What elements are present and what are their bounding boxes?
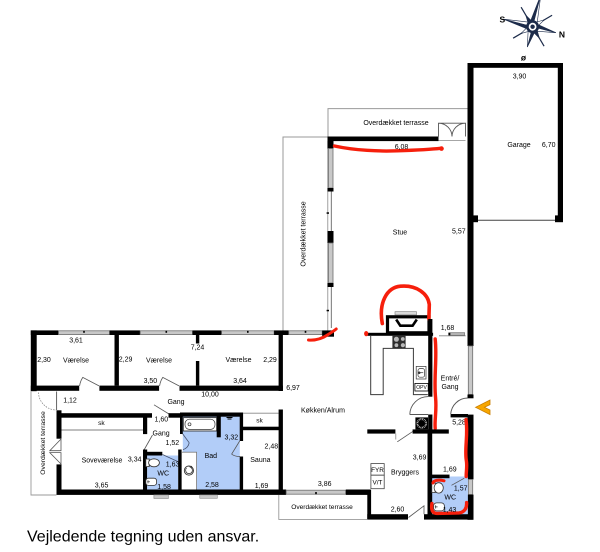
svg-text:Værelse: Værelse: [146, 358, 172, 365]
svg-text:sk: sk: [98, 420, 105, 427]
svg-text:FYR: FYR: [371, 467, 384, 474]
svg-text:1,68: 1,68: [441, 325, 455, 332]
svg-text:3,86: 3,86: [318, 481, 332, 488]
svg-text:Værelse: Værelse: [63, 358, 89, 365]
svg-text:Vejledende tegning uden ansvar: Vejledende tegning uden ansvar.: [27, 529, 259, 546]
svg-text:1,12: 1,12: [63, 397, 77, 404]
svg-text:Overdækket terrasse: Overdækket terrasse: [363, 120, 428, 127]
svg-text:6,70: 6,70: [542, 142, 556, 149]
svg-text:3,32: 3,32: [224, 435, 238, 442]
svg-text:5,57: 5,57: [452, 229, 466, 236]
svg-text:Gang: Gang: [441, 384, 458, 391]
svg-text:1,69: 1,69: [443, 467, 457, 474]
svg-text:Overdækket terrasse: Overdækket terrasse: [291, 504, 353, 511]
svg-text:6,97: 6,97: [286, 385, 300, 392]
svg-text:2,29: 2,29: [263, 357, 277, 364]
svg-text:ø: ø: [521, 53, 527, 63]
svg-text:3,34: 3,34: [128, 457, 142, 464]
svg-text:1,69: 1,69: [255, 483, 269, 490]
svg-text:6,08: 6,08: [395, 144, 409, 151]
svg-text:Overdækket terrasse: Overdækket terrasse: [301, 201, 308, 266]
svg-text:1,60: 1,60: [154, 416, 168, 423]
svg-text:Stue: Stue: [393, 230, 408, 237]
svg-text:10,00: 10,00: [201, 391, 219, 398]
svg-text:3,90: 3,90: [513, 74, 527, 81]
svg-text:1,63: 1,63: [166, 461, 180, 468]
svg-text:1,43: 1,43: [443, 507, 457, 514]
svg-text:3,61: 3,61: [69, 337, 83, 344]
svg-text:5,28: 5,28: [452, 419, 466, 426]
svg-text:2,30: 2,30: [37, 357, 51, 364]
svg-text:Gang: Gang: [153, 431, 170, 438]
svg-text:S: S: [499, 14, 505, 24]
svg-text:Værelse: Værelse: [225, 357, 251, 364]
svg-text:Gang: Gang: [167, 399, 184, 406]
svg-text:7,24: 7,24: [191, 345, 205, 352]
svg-text:2,60: 2,60: [391, 507, 405, 514]
svg-text:Entré/: Entré/: [441, 376, 460, 383]
svg-text:Køkken/Alrum: Køkken/Alrum: [301, 408, 345, 415]
svg-text:3,64: 3,64: [233, 378, 247, 385]
svg-text:Overdækket terrasse: Overdækket terrasse: [40, 411, 47, 475]
svg-text:1,57: 1,57: [454, 486, 468, 493]
svg-text:Sauna: Sauna: [250, 457, 270, 464]
svg-text:3,69: 3,69: [413, 455, 427, 462]
svg-text:3,65: 3,65: [95, 482, 109, 489]
svg-text:1,52: 1,52: [165, 440, 179, 447]
svg-text:Garage: Garage: [507, 142, 530, 149]
svg-text:V/T: V/T: [373, 480, 383, 487]
svg-text:WC: WC: [444, 495, 456, 502]
svg-text:3,50: 3,50: [144, 378, 158, 385]
svg-text:2,48: 2,48: [264, 443, 278, 450]
svg-text:2,29: 2,29: [119, 356, 133, 363]
svg-text:OPV: OPV: [416, 385, 427, 391]
svg-text:Soveværelse: Soveværelse: [82, 457, 123, 464]
svg-text:Bad: Bad: [205, 453, 218, 460]
svg-text:N: N: [559, 29, 565, 39]
svg-text:sk: sk: [256, 417, 263, 424]
svg-text:2,58: 2,58: [205, 482, 219, 489]
svg-text:WC: WC: [157, 471, 169, 478]
svg-text:Bryggers: Bryggers: [391, 469, 420, 476]
